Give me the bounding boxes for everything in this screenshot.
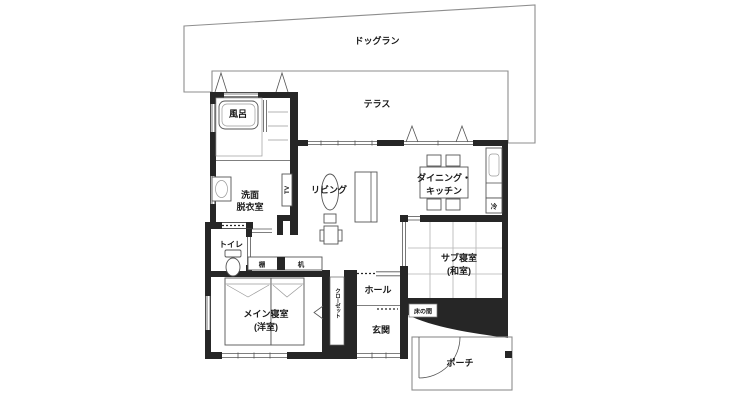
room-dining-kitchen: ダイニング・ キッチン 冷 (417, 148, 502, 213)
side-table (324, 214, 336, 223)
tokonoma-label: 床の間 (414, 308, 432, 316)
wall (322, 345, 357, 359)
post-icon (406, 126, 418, 142)
dining-kitchen-label-1: ダイニング・ (417, 172, 471, 183)
wall (296, 140, 308, 146)
wall (205, 352, 222, 359)
desk-nook: 棚 机 (248, 257, 322, 270)
toilet-label: トイレ (219, 240, 243, 249)
wall (322, 270, 330, 352)
sub-bedroom-label-2: (和室) (447, 265, 471, 276)
bath-label: 風呂 (229, 109, 247, 119)
wall (400, 270, 408, 359)
shelf-label: 棚 (259, 260, 266, 269)
room-sub-bedroom: サブ寝室 (和室) 床の間 (408, 222, 508, 338)
wall (400, 266, 408, 278)
armchair (324, 226, 338, 244)
dog-run-label: ドッグラン (354, 35, 399, 46)
hall-label: ホール (364, 285, 391, 295)
wall (205, 271, 322, 277)
wall (287, 352, 322, 359)
dining-kitchen-label-2: キッチン (426, 186, 462, 196)
closet-door-arrow-icon (314, 306, 323, 319)
dining-chair (446, 199, 460, 210)
wall (400, 215, 408, 222)
kitchen-counter (486, 148, 502, 198)
wall (205, 229, 211, 277)
room-washroom: 洗面 脱衣室 TV (212, 174, 292, 212)
room-living: リビング (311, 172, 377, 244)
room-bath: 風呂 (216, 98, 288, 156)
terrace-label: テラス (364, 99, 391, 109)
desk-label: 机 (298, 260, 305, 269)
window (206, 296, 210, 330)
main-bedroom-label-2: (洋室) (254, 321, 278, 332)
post-icon (456, 126, 468, 142)
closet-label: クローゼット (334, 287, 341, 319)
sub-bedroom-label-1: サブ寝室 (441, 252, 477, 263)
post-icon (276, 73, 288, 92)
wall (377, 140, 404, 146)
washroom-label-1: 洗面 (241, 189, 259, 200)
dining-chair (446, 155, 460, 166)
sofa (355, 172, 377, 222)
post-icon (215, 73, 227, 92)
porch-label: ポーチ (446, 357, 473, 368)
counter-divider (277, 257, 285, 270)
wall (502, 143, 508, 305)
wall (277, 215, 283, 235)
room-hall: ホール 玄関 (364, 285, 391, 335)
wall (290, 92, 298, 235)
room-toilet: トイレ (219, 240, 243, 276)
dining-chair (427, 155, 441, 166)
main-bedroom-label-1: メイン寝室 (243, 308, 288, 319)
entrance-label: 玄関 (372, 324, 390, 335)
fridge-label: 冷 (491, 202, 498, 211)
wall (344, 270, 357, 352)
wall (505, 351, 512, 358)
wall (420, 215, 508, 222)
toilet-bowl (226, 258, 240, 276)
armchair (338, 230, 342, 241)
floor-plan-svg: ドッグラン テラス (0, 0, 730, 400)
toilet-tank (225, 250, 241, 257)
armchair (320, 230, 324, 241)
dining-chair (427, 199, 441, 210)
floor-plan-canvas: ドッグラン テラス (0, 0, 730, 400)
wall (246, 229, 252, 237)
washroom-label-2: 脱衣室 (236, 201, 263, 212)
living-label: リビング (311, 184, 347, 195)
tv-label: TV (284, 185, 291, 194)
porch-area: ポーチ (412, 337, 512, 390)
